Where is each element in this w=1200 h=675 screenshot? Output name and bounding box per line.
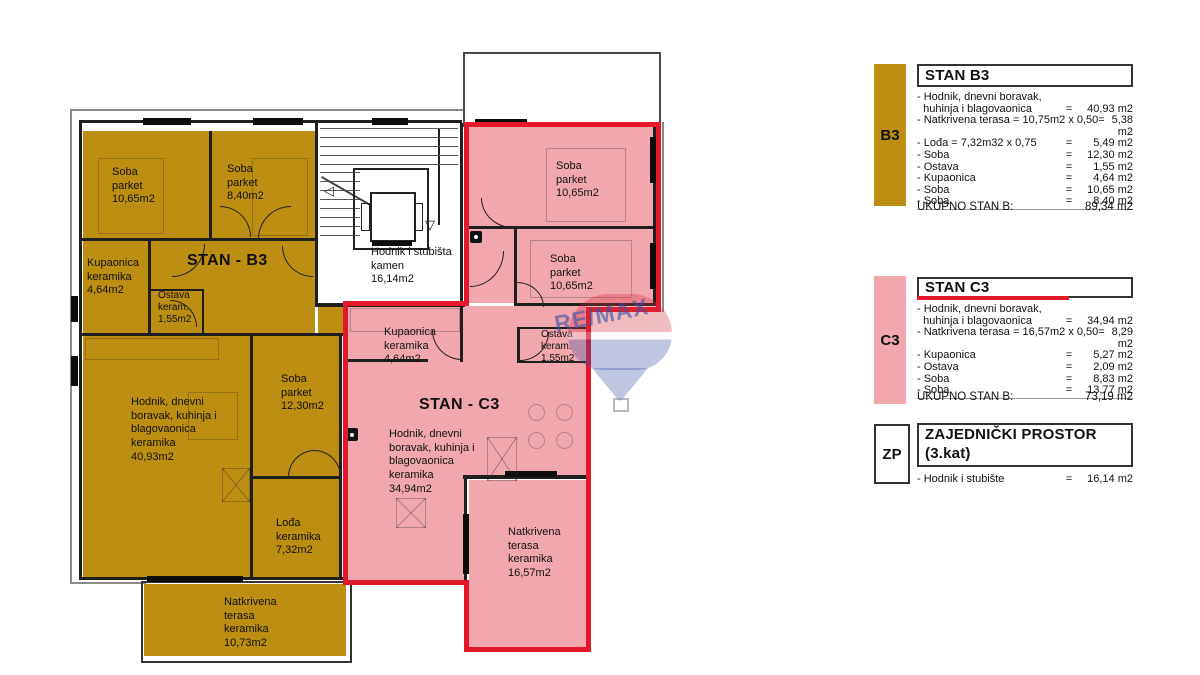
wall — [468, 226, 656, 229]
legend-row: - Hodnik, dnevni boravak, — [917, 304, 1133, 316]
legend-title-c3-underline — [917, 296, 1069, 300]
room-label-b3-living: Hodnik, dnevni boravak, kuhinja i blagov… — [131, 396, 217, 464]
wall — [209, 131, 212, 239]
exterior-outline — [70, 109, 72, 584]
legend-row: - Natkrivena terasa = 16,57m2 x 0,50=8,2… — [917, 327, 1133, 350]
furniture-closet — [487, 437, 517, 481]
legend-swatch-b3: B3 — [874, 64, 906, 206]
legend-title-zp-line2: (3.kat) — [925, 445, 971, 464]
furniture-kitchen — [85, 338, 219, 360]
legend-title-zp: ZAJEDNIČKI PROSTOR (3.kat) — [917, 423, 1133, 467]
furniture-closet — [222, 468, 250, 502]
furniture-chair — [556, 404, 573, 421]
wall — [460, 123, 463, 306]
room-label-b3-room3: Soba parket 12,30m2 — [281, 373, 324, 414]
apartment-title-b3: STAN - B3 — [187, 252, 268, 270]
legend-code-c3: C3 — [880, 332, 899, 349]
c3-boundary — [343, 301, 348, 585]
c3-boundary — [464, 122, 469, 306]
roof-outline — [463, 52, 661, 127]
legend-title-c3: STAN C3 — [917, 277, 1133, 298]
wall — [80, 333, 344, 336]
utility-icon — [470, 231, 482, 243]
floorplan-page: ◁ ▽ Soba parket 10,65m2 Soba parket 8,40… — [0, 0, 1200, 675]
exterior-outline — [662, 122, 664, 312]
legend-row: - Ostava=2,09 m2 — [917, 362, 1133, 374]
window-marker — [71, 296, 78, 322]
legend-code-zp: ZP — [882, 446, 901, 463]
room-label-c3-bath: Kupaonica keramika 4,64m2 — [384, 326, 436, 367]
room-label-c3-storage: Ostava keram. 1,55m2 — [541, 329, 574, 365]
wall — [79, 120, 82, 580]
exterior-outline — [70, 109, 463, 111]
room-label-stairwell: Hodnik i stubišta kamen 16,14m2 — [371, 246, 452, 287]
c3-boundary — [464, 122, 661, 127]
room-label-b3-storage: Ostava keram. 1,55m2 — [158, 290, 191, 326]
legend-row: - Hodnik i stubište=16,14 m2 — [917, 474, 1133, 486]
legend-row: - Soba=12,30 m2 — [917, 150, 1133, 162]
elevator-rail — [361, 203, 370, 231]
window-marker — [253, 118, 303, 125]
stair-treads — [320, 128, 458, 166]
legend-title-zp-line1: ZAJEDNIČKI PROSTOR — [925, 426, 1097, 445]
legend-total-c3: UKUPNO STAN B: 73,19 m2 — [917, 391, 1133, 403]
elevator-car — [370, 192, 416, 242]
room-label-b3-loggia: Lođa keramika 7,32m2 — [276, 517, 321, 558]
room-label-b3-room2: Soba parket 8,40m2 — [227, 163, 264, 204]
remax-balloon-icon — [592, 368, 648, 402]
b3-hall-fill2 — [318, 307, 343, 334]
c3-boundary — [464, 647, 591, 652]
window-marker — [71, 356, 78, 386]
furniture-closet — [396, 498, 426, 528]
window-marker — [147, 576, 243, 582]
legend-title-b3-text: STAN B3 — [925, 67, 989, 84]
c3-boundary — [656, 122, 661, 312]
window-marker — [463, 514, 469, 574]
legend-items-c3: - Hodnik, dnevni boravak, huhinja i blag… — [917, 304, 1133, 399]
c3-boundary — [586, 307, 591, 652]
furniture-chair — [528, 432, 545, 449]
legend-swatch-zp: ZP — [874, 424, 910, 484]
apartment-title-c3: STAN - C3 — [419, 396, 500, 414]
wall — [339, 336, 342, 580]
room-label-c3-room1: Soba parket 10,65m2 — [556, 160, 599, 201]
c3-boundary — [464, 580, 469, 652]
exterior-outline — [70, 582, 146, 584]
legend-total-b3: UKUPNO STAN B: 89,34 m2 — [917, 201, 1133, 213]
elevator-rail — [414, 203, 423, 231]
room-label-b3-room1: Soba parket 10,65m2 — [112, 166, 155, 207]
c3-boundary — [343, 580, 469, 585]
wall — [250, 336, 253, 578]
wall — [148, 241, 151, 335]
legend-row: - Natkrivena terasa = 10,75m2 x 0,50=5,3… — [917, 115, 1133, 138]
furniture-chair — [528, 404, 545, 421]
legend-row: - Hodnik, dnevni boravak, — [917, 92, 1133, 104]
furniture-chair — [556, 432, 573, 449]
legend-swatch-c3: C3 — [874, 276, 906, 404]
stair-up-arrow-icon: ◁ — [324, 184, 334, 197]
room-label-c3-room2: Soba parket 10,65m2 — [550, 253, 593, 294]
window-marker — [372, 118, 408, 125]
room-label-c3-living: Hodnik, dnevni boravak, kuhinja i blagov… — [389, 428, 475, 496]
legend-title-b3: STAN B3 — [917, 64, 1133, 87]
c3-boundary — [343, 301, 469, 306]
wall — [202, 289, 204, 335]
wall — [315, 123, 318, 306]
legend-items-zp: - Hodnik i stubište=16,14 m2 — [917, 474, 1133, 486]
legend-code-b3: B3 — [880, 127, 899, 144]
legend-title-c3-text: STAN C3 — [925, 279, 989, 296]
legend-row: - Kupaonica=4,64 m2 — [917, 173, 1133, 185]
room-label-b3-terrace: Natkrivena terasa keramika 10,73m2 — [224, 596, 277, 651]
remax-balloon-basket — [613, 398, 629, 412]
room-label-c3-terrace: Natkrivena terasa keramika 16,57m2 — [508, 526, 561, 581]
room-label-b3-bath: Kupaonica keramika 4,64m2 — [87, 257, 139, 298]
c3-boundary — [586, 307, 661, 312]
legend-items-b3: - Hodnik, dnevni boravak, huhinja i blag… — [917, 92, 1133, 210]
window-marker — [143, 118, 191, 125]
